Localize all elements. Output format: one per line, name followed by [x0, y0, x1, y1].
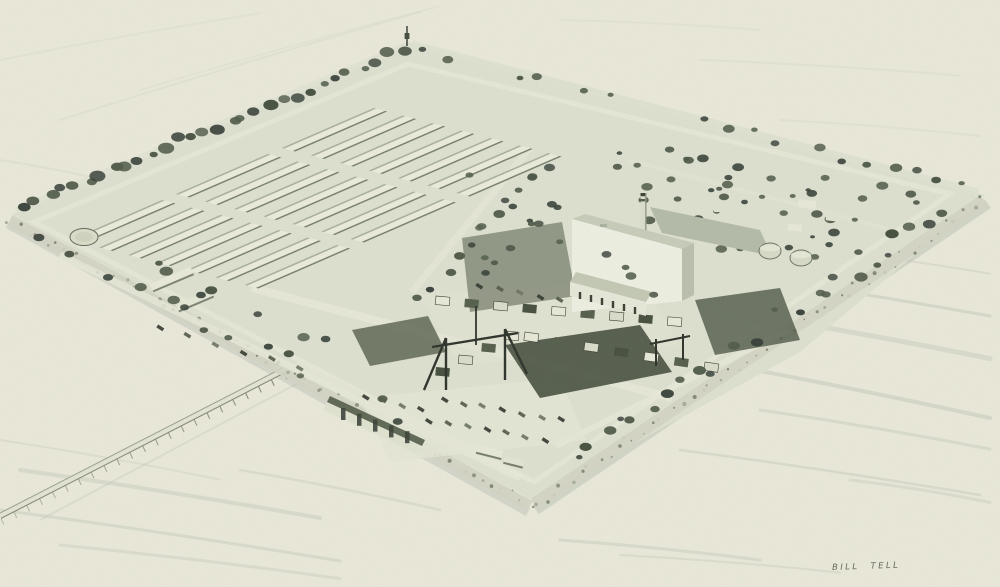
- artwork-canvas: BILL TELL: [0, 0, 1000, 587]
- scanned-photo: BILL TELL: [0, 0, 1000, 587]
- paper-grain: [0, 0, 1000, 587]
